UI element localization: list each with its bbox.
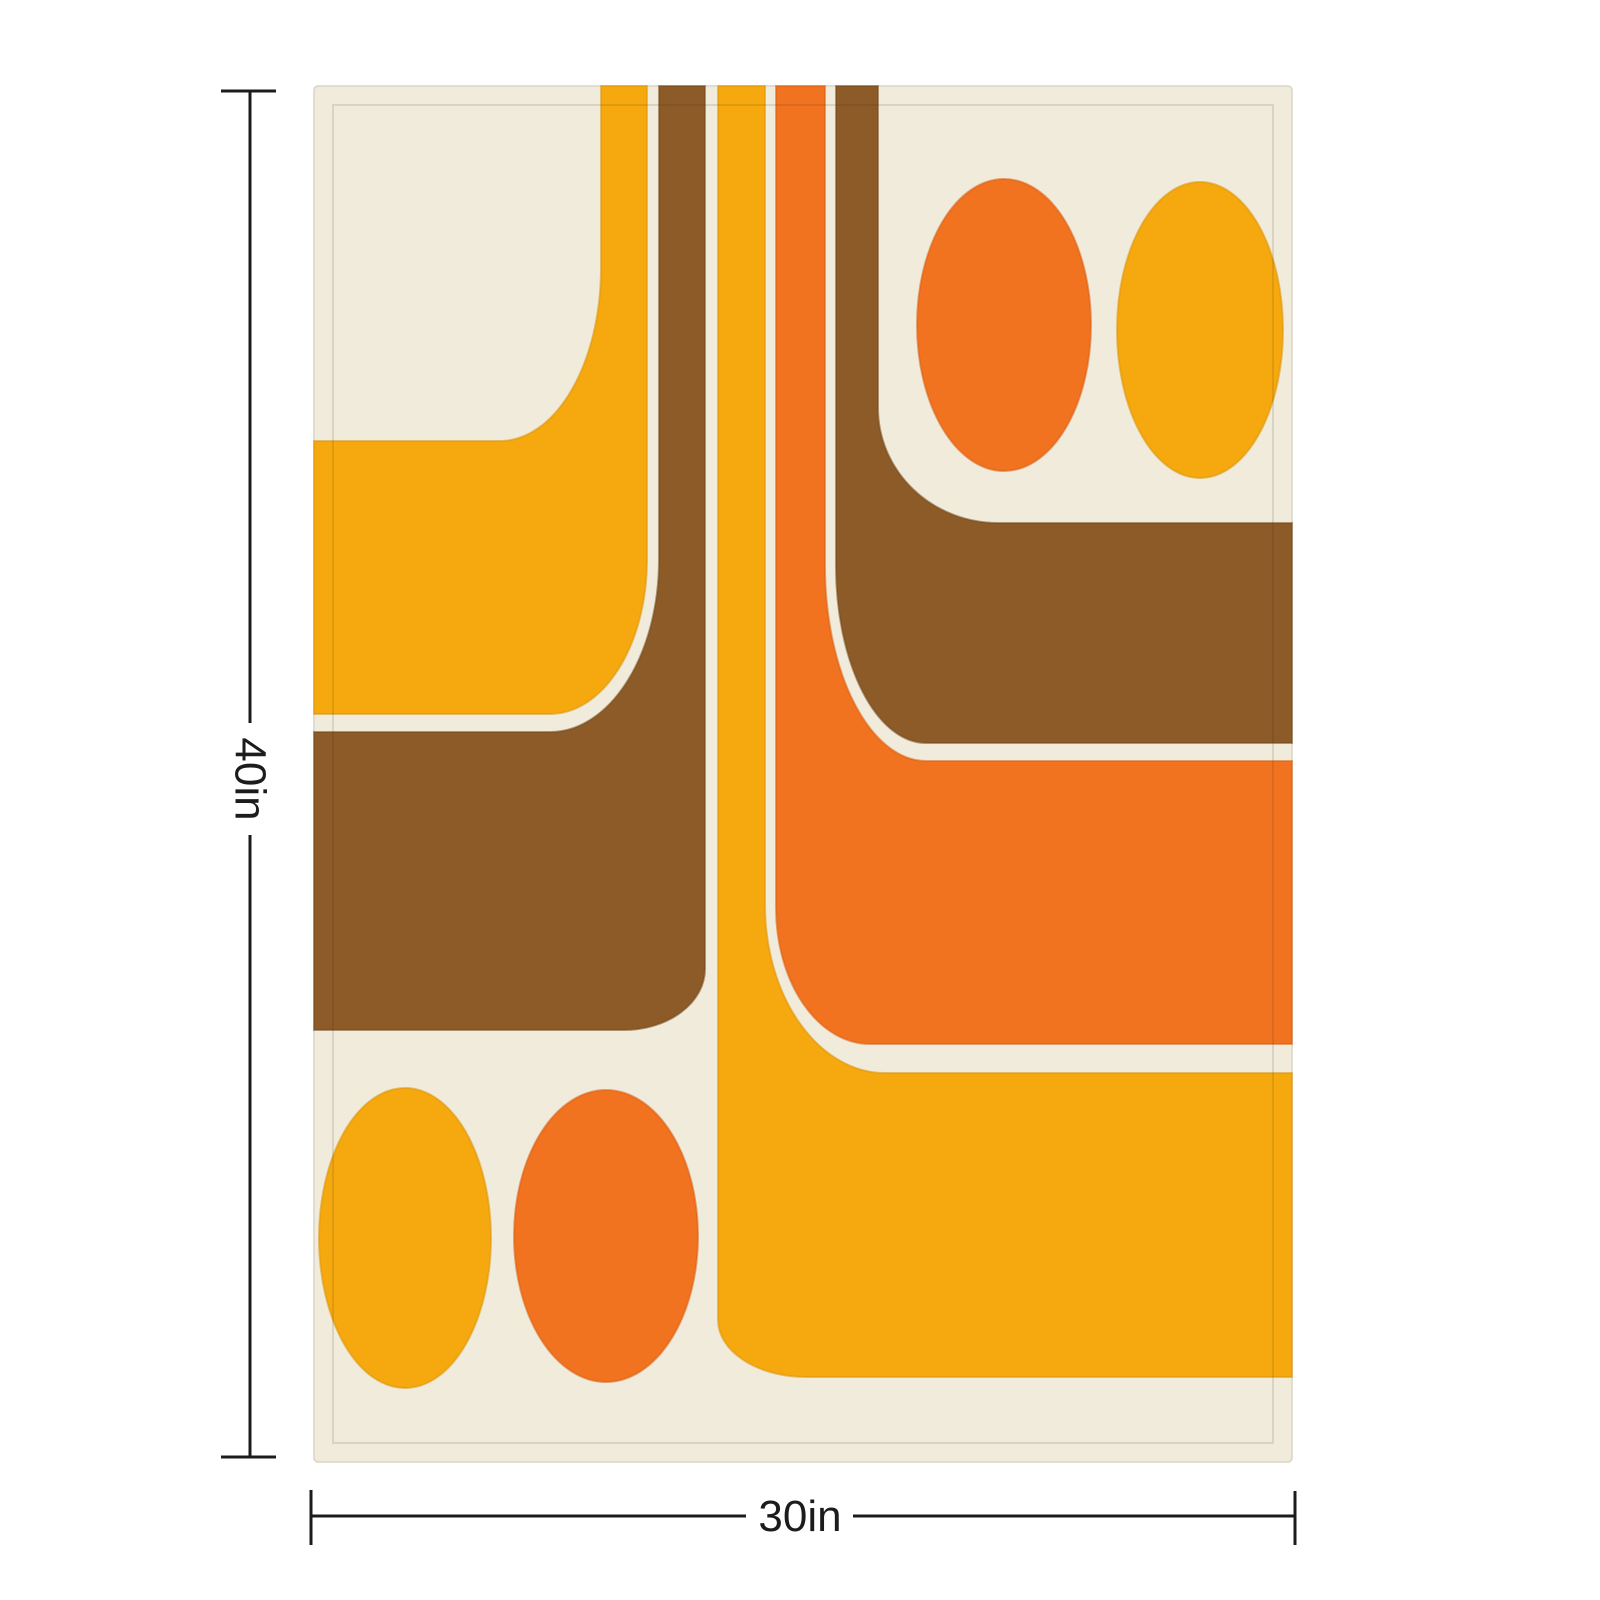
svg-text:30in: 30in bbox=[758, 1492, 841, 1541]
svg-text:40in: 40in bbox=[226, 737, 275, 820]
